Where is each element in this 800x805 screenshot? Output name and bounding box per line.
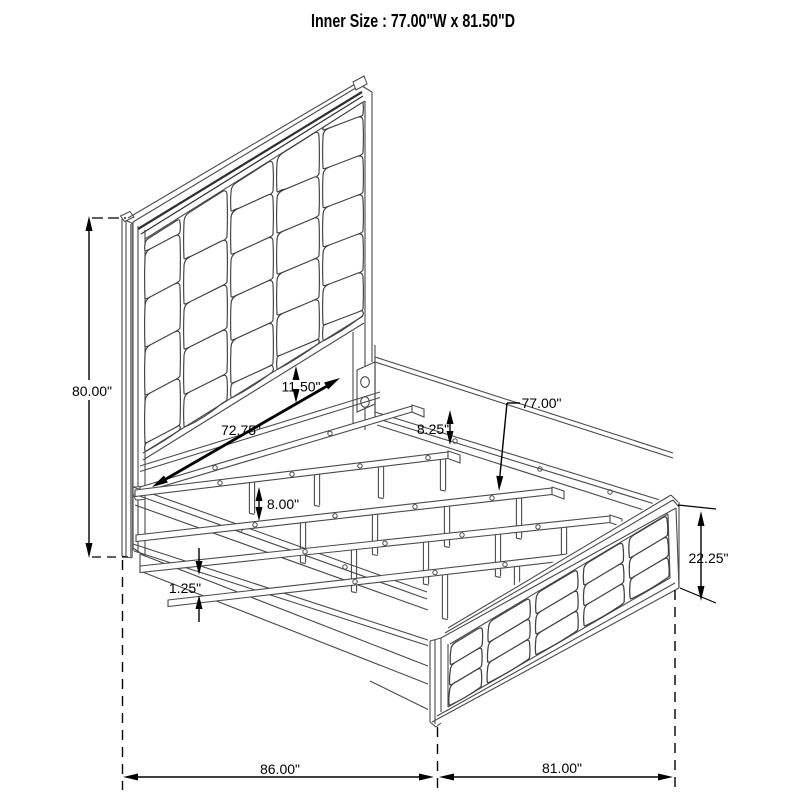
svg-text:72.75": 72.75" [221,422,261,438]
svg-text:Inner Size : 77.00"W x 81.50"D: Inner Size : 77.00"W x 81.50"D [311,10,515,31]
svg-text:81.00": 81.00" [542,760,582,776]
svg-text:1.25": 1.25" [169,580,201,596]
svg-text:8.25": 8.25" [417,421,449,437]
svg-text:80.00": 80.00" [72,383,112,399]
svg-text:8.00": 8.00" [267,496,299,512]
svg-text:11.50": 11.50" [282,379,321,395]
svg-text:22.25": 22.25" [688,550,728,566]
svg-text:77.00": 77.00" [521,395,561,411]
svg-text:86.00": 86.00" [260,761,300,777]
